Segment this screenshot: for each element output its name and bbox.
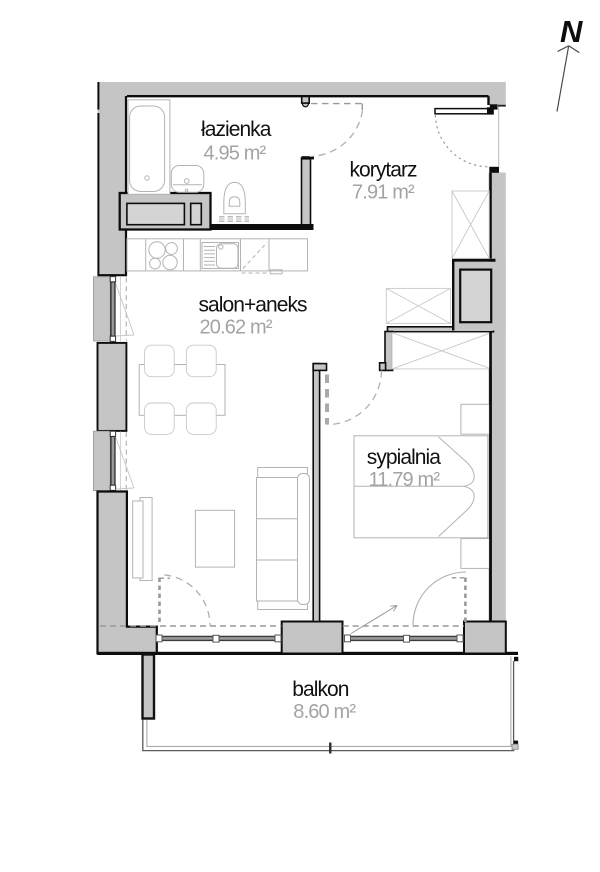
svg-text:balkon: balkon (292, 678, 348, 701)
svg-text:7.91 m²: 7.91 m² (352, 182, 415, 204)
svg-text:11.79 m²: 11.79 m² (369, 469, 441, 491)
svg-text:N: N (560, 14, 583, 49)
svg-text:łazienka: łazienka (201, 118, 272, 141)
svg-text:salon+aneks: salon+aneks (199, 293, 308, 316)
svg-text:sypialnia: sypialnia (367, 446, 441, 469)
svg-text:8.60 m²: 8.60 m² (293, 701, 356, 723)
svg-text:20.62 m²: 20.62 m² (200, 316, 273, 338)
svg-text:korytarz: korytarz (350, 159, 418, 182)
svg-text:4.95 m²: 4.95 m² (204, 143, 267, 165)
